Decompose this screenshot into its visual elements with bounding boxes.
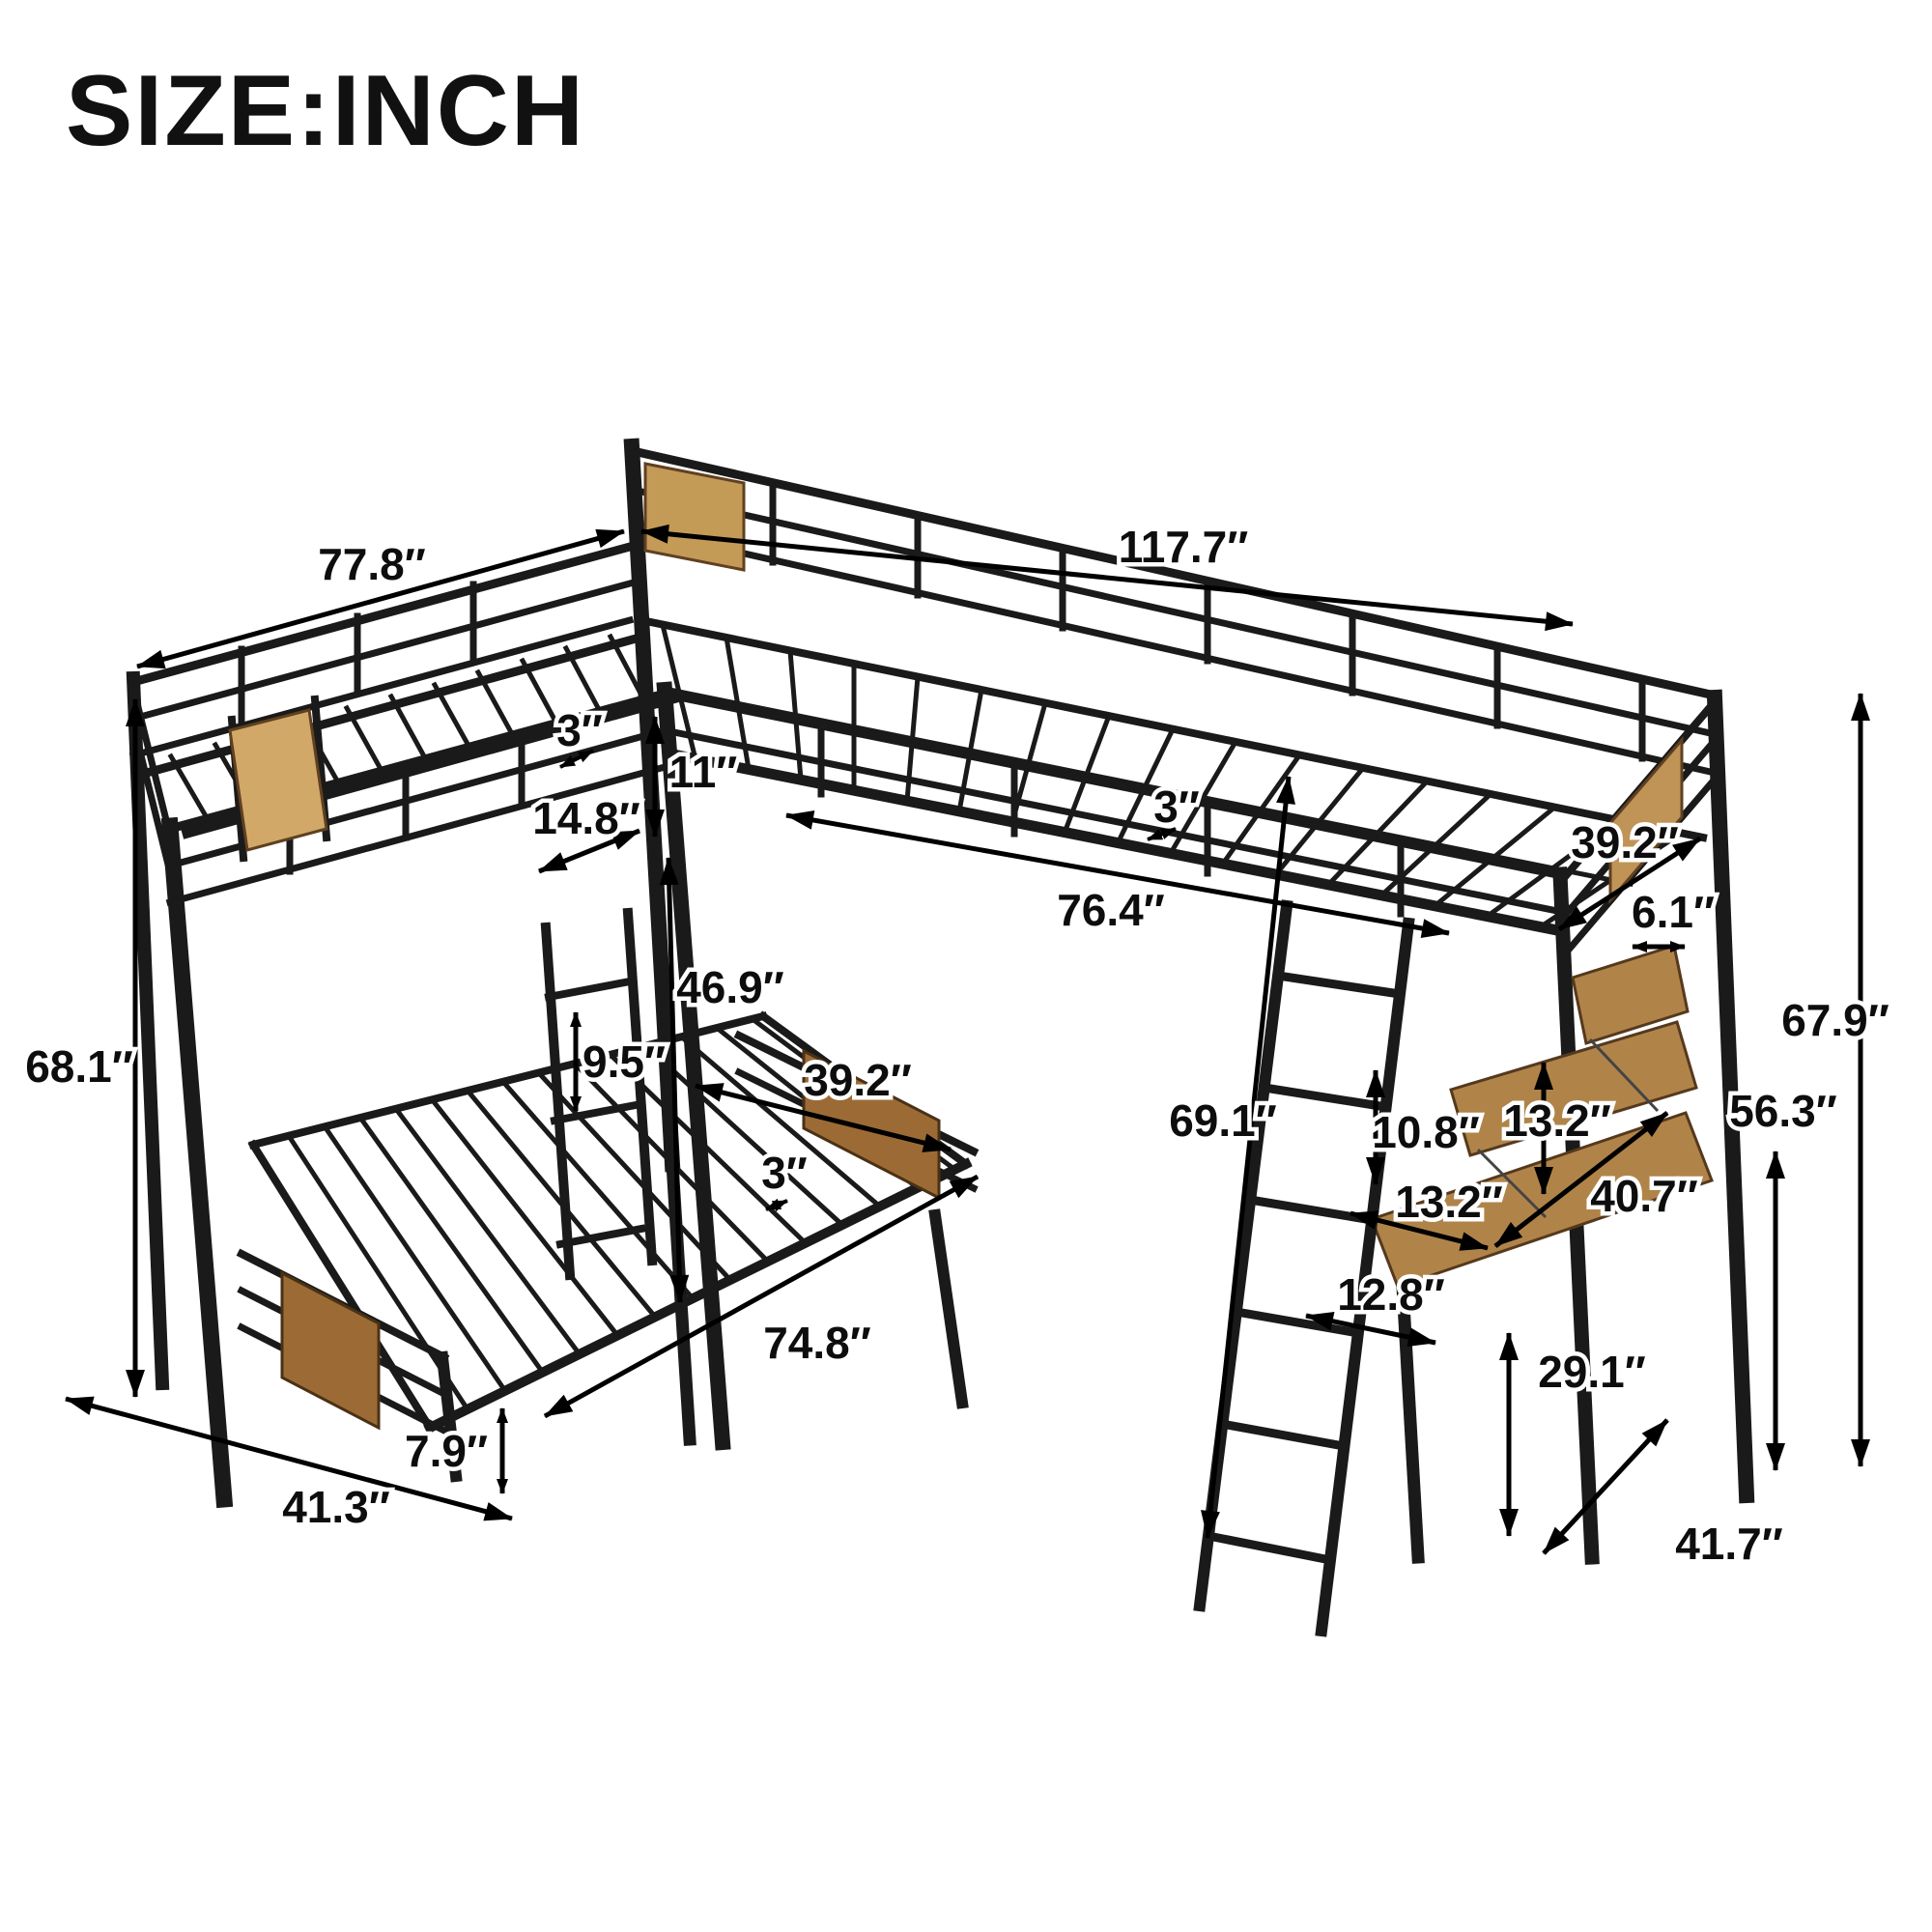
dim-label-14-8: 14.8″: [532, 793, 640, 843]
dim-label-6-1: 6.1″: [1632, 887, 1715, 937]
dim-label-41-7: 41.7″: [1675, 1519, 1783, 1569]
dim-label-67-9: 67.9″: [1781, 995, 1889, 1045]
dim-label-69-1: 69.1″: [1169, 1095, 1277, 1146]
dim-label-39-2-lower: 39.2″: [804, 1055, 912, 1105]
dim-label-13-2-desk: 13.2″: [1395, 1177, 1503, 1227]
dim-label-3-lower: 3″: [761, 1148, 808, 1198]
dim-label-13-2-shelf: 13.2″: [1503, 1095, 1611, 1146]
dim-label-12-8: 12.8″: [1337, 1269, 1445, 1320]
dim-label-9-5: 9.5″: [582, 1037, 666, 1087]
dim-label-39-2-loft: 39.2″: [1571, 817, 1679, 867]
dim-line-41-7: [1544, 1420, 1667, 1553]
dim-line-117-7: [641, 531, 1573, 624]
page-title: SIZE:INCH: [66, 55, 585, 167]
upper-bunk-wood-panel: [230, 710, 327, 850]
dim-label-77-8: 77.8″: [318, 539, 426, 589]
bed-structure: [133, 446, 1747, 1631]
access-ladder: [1200, 906, 1408, 1631]
loft-corner-wood-panel: [645, 464, 744, 570]
dim-label-41-3: 41.3″: [282, 1482, 390, 1532]
diagram-page: SIZE:INCH 77.8″ 117.7″ 3″ 11″ 14.8″ 3″ 7…: [0, 0, 1932, 1932]
dim-label-74-8: 74.8″: [763, 1318, 871, 1368]
dim-label-10-8: 10.8″: [1372, 1107, 1480, 1157]
dim-label-3-loft: 3″: [1153, 781, 1200, 832]
dim-label-29-1: 29.1″: [1538, 1347, 1646, 1397]
dim-line-74-8: [545, 1177, 978, 1416]
dim-label-3-upper: 3″: [556, 705, 603, 755]
dim-label-40-7: 40.7″: [1590, 1171, 1698, 1221]
interior-ladder: [546, 913, 652, 1275]
dim-label-56-3: 56.3″: [1729, 1086, 1837, 1136]
dim-label-11: 11″: [669, 747, 738, 797]
dim-label-46-9: 46.9″: [676, 962, 784, 1012]
dim-label-76-4: 76.4″: [1057, 885, 1165, 935]
dim-label-7-9: 7.9″: [405, 1426, 488, 1476]
dim-label-68-1: 68.1″: [25, 1041, 133, 1092]
bunk-bed-dimension-diagram: SIZE:INCH 77.8″ 117.7″ 3″ 11″ 14.8″ 3″ 7…: [0, 0, 1932, 1932]
dim-label-117-7: 117.7″: [1119, 522, 1249, 572]
